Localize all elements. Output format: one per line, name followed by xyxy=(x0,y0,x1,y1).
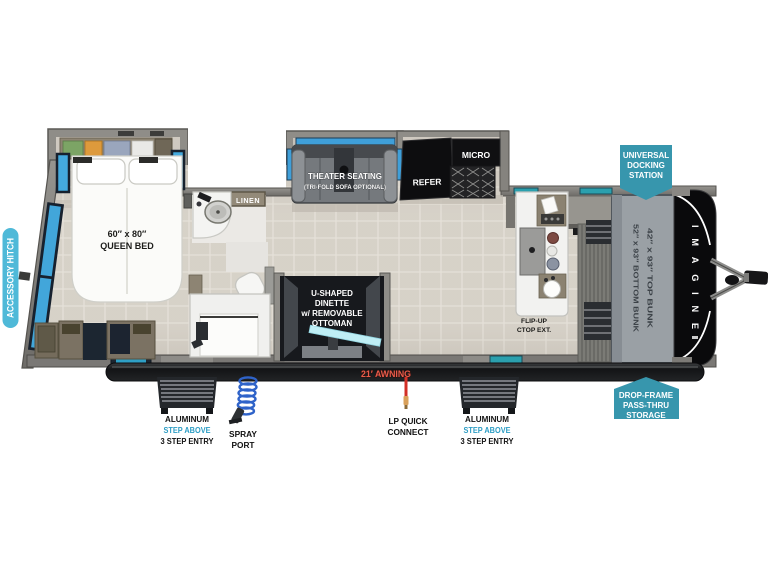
svg-text:QUEEN BED: QUEEN BED xyxy=(100,241,154,251)
svg-text:STORAGE: STORAGE xyxy=(626,411,666,420)
svg-text:3 STEP ENTRY: 3 STEP ENTRY xyxy=(461,437,515,446)
svg-text:w/ REMOVABLE: w/ REMOVABLE xyxy=(300,309,363,318)
svg-text:ALUMINUM: ALUMINUM xyxy=(165,415,209,424)
svg-text:PORT: PORT xyxy=(232,441,255,450)
svg-text:3 STEP ENTRY: 3 STEP ENTRY xyxy=(161,437,215,446)
svg-text:MICRO: MICRO xyxy=(462,150,491,160)
svg-text:PASS-THRU: PASS-THRU xyxy=(623,401,669,410)
svg-text:STEP ABOVE: STEP ABOVE xyxy=(464,426,512,435)
svg-text:DOCKING: DOCKING xyxy=(627,161,665,170)
svg-text:21′ AWNING: 21′ AWNING xyxy=(361,369,411,379)
svg-text:FLIP-UP: FLIP-UP xyxy=(521,318,548,325)
svg-text:LP QUICK: LP QUICK xyxy=(389,417,428,426)
svg-text:ACCESSORY HITCH: ACCESSORY HITCH xyxy=(6,238,16,318)
svg-text:LINEN: LINEN xyxy=(236,196,260,205)
svg-text:UNIVERSAL: UNIVERSAL xyxy=(623,151,669,160)
svg-text:STEP ABOVE: STEP ABOVE xyxy=(164,426,212,435)
svg-text:CONNECT: CONNECT xyxy=(388,428,429,437)
svg-text:SPRAY: SPRAY xyxy=(229,430,258,439)
svg-text:CTOP EXT.: CTOP EXT. xyxy=(517,327,551,334)
svg-text:42″ x 93″ TOP BUNK: 42″ x 93″ TOP BUNK xyxy=(646,228,655,329)
svg-text:THEATER SEATING: THEATER SEATING xyxy=(308,171,382,181)
svg-text:52″ x 93″ BOTTOM BUNK: 52″ x 93″ BOTTOM BUNK xyxy=(632,224,641,333)
svg-text:STATION: STATION xyxy=(629,171,663,180)
svg-text:OTTOMAN: OTTOMAN xyxy=(312,319,353,328)
svg-text:DROP-FRAME: DROP-FRAME xyxy=(619,391,674,400)
svg-text:U-SHAPED: U-SHAPED xyxy=(311,289,353,298)
svg-text:60″ x 80″: 60″ x 80″ xyxy=(108,229,147,239)
svg-text:(TRI-FOLD SOFA OPTIONAL): (TRI-FOLD SOFA OPTIONAL) xyxy=(304,184,386,191)
svg-text:DINETTE: DINETTE xyxy=(315,299,350,308)
svg-text:REFER: REFER xyxy=(412,177,441,188)
svg-text:ALUMINUM: ALUMINUM xyxy=(465,415,509,424)
